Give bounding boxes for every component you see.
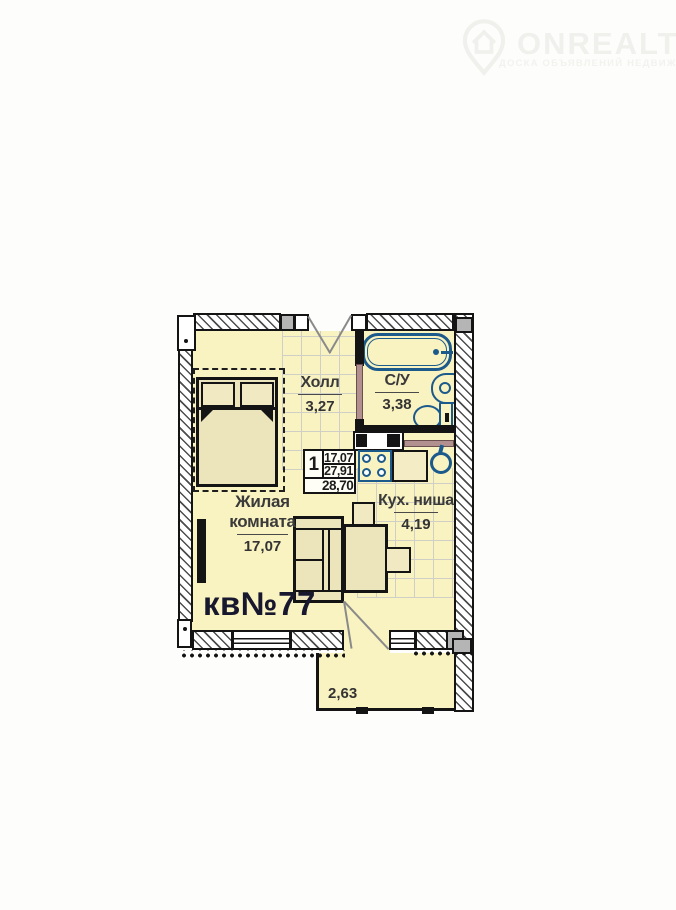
bathtub-drain [433,349,439,355]
balcony-area-label: 2,63 [328,685,357,702]
cabinet-block [356,434,367,447]
burner [377,454,386,463]
sink-basin-circle [439,382,451,394]
stamp-living-area: 17,07 [324,451,352,465]
corner-dot [184,339,188,343]
stove-symbol [358,450,392,482]
kitchen-cabinet-symbol [353,431,404,451]
wall-pier-block [351,314,367,331]
room-name: Холл [285,374,355,394]
room-area: 4,19 [394,512,437,533]
wall-bottom [192,630,233,650]
room-label-hall: Холл 3,27 [285,374,355,416]
insulation-dots [178,650,345,658]
stamp-rooms-count: 1 [306,454,321,476]
room-name: С/У [362,372,432,392]
room-area: 3,38 [375,392,418,413]
pillow-symbol [240,382,274,407]
corner-dot [183,627,187,631]
watermark-brand: ONREALT [517,26,676,62]
burner [377,468,386,477]
cabinet-block [387,434,400,447]
kitchen-counter-symbol [392,450,428,482]
wall-bathroom [355,331,364,366]
wall-corner-box [177,315,196,351]
bathtub-symbol [362,333,452,371]
wall-bottom [290,630,344,650]
sofa-cushion-line [296,559,322,561]
balcony-rail-mark [422,707,434,714]
window-symbol [389,630,416,650]
blanket-corner-mark [261,410,273,422]
wall-corner-box [177,619,192,648]
wall-pier-block [455,317,473,333]
balcony [316,653,462,711]
wall-top [193,313,281,331]
wall-bathroom-bottom [355,425,454,433]
stamp-apartment-area: 27,91 [324,464,352,478]
toilet-flush-button [445,413,449,422]
blanket-corner-mark [201,410,213,422]
room-label-kitchen: Кух. ниша 4,19 [378,492,454,534]
burner [362,468,371,477]
room-label-living: Жилая комната 17,07 [200,492,325,556]
stool-symbol [385,547,411,573]
wall-bottom [415,630,448,650]
room-area: 3,27 [298,394,341,415]
wall-pier-block [452,638,472,654]
balcony-rail-mark [356,707,368,714]
floor-plan-page: ONREALT ДОСКА ОБЪЯВЛЕНИЙ НЕДВИЖИМОСТИ [0,0,676,910]
area-stamp: 1 17,07 27,91 28,70 [303,449,356,494]
room-label-bathroom: С/У 3,38 [362,372,432,414]
stamp-total-area: 28,70 [322,478,352,493]
wall-top [366,313,454,331]
kitchen-sink-symbol [430,452,452,474]
window-symbol [232,630,291,650]
room-name: Кух. ниша [378,492,454,512]
watermark-tagline: ДОСКА ОБЪЯВЛЕНИЙ НЕДВИЖИМОСТИ [499,58,676,69]
wall-pier-block [280,314,295,331]
bathtub-drain-line [441,351,453,354]
sofa-back-line [328,530,330,590]
table-symbol [343,524,388,593]
wall-left [178,348,193,622]
room-area: 17,07 [237,534,289,555]
burner [362,454,371,463]
pillow-symbol [201,382,235,407]
kitchen-partition [404,440,454,447]
room-name: Жилая комната [200,492,325,534]
apartment-number-label: кв№77 [203,585,316,623]
